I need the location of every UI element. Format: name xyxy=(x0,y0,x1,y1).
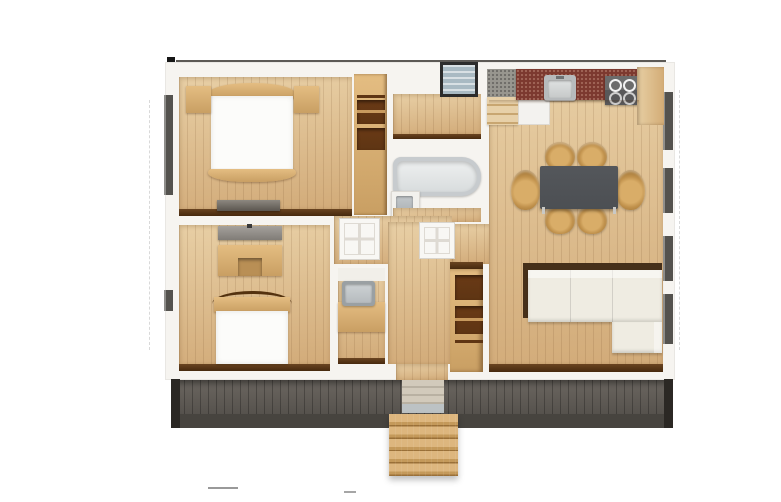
hall-top-floor xyxy=(393,94,481,134)
window-right-2 xyxy=(663,168,673,213)
hall-closet-board xyxy=(455,318,483,321)
bed2-mattress xyxy=(216,311,288,364)
hall-closet-shelf-1 xyxy=(455,275,483,300)
dining-table-leg-1 xyxy=(542,207,545,214)
bedroom2-dresser-knob xyxy=(247,224,252,228)
bedroom2-south-trim xyxy=(179,364,330,371)
bathtub-interior xyxy=(397,161,477,192)
window-right-1 xyxy=(663,92,673,150)
window-right-3 xyxy=(663,236,673,281)
open-door-bedroom2 xyxy=(339,218,380,260)
hall-top-trim xyxy=(393,134,481,139)
open-door-bathroom xyxy=(419,222,455,259)
wardrobe-open-shelf-2 xyxy=(357,128,385,150)
bedroom2-desk-kneehole xyxy=(238,258,262,276)
wardrobe-shelf-board-1 xyxy=(357,110,385,113)
dining-chair-right xyxy=(616,170,645,210)
top-wall-window xyxy=(440,62,478,97)
nightstand-right xyxy=(294,86,319,113)
sofa-body xyxy=(528,270,662,322)
bed2-headboard xyxy=(214,297,290,312)
utility-counter xyxy=(338,302,385,332)
deck-doorway-floor xyxy=(396,364,448,380)
dimension-dash-right xyxy=(679,90,680,350)
kitchen-gray-counter xyxy=(487,69,517,97)
utility-sink-basin xyxy=(345,284,372,303)
hall-closet-divider xyxy=(455,340,483,343)
kitchen-faucet xyxy=(556,76,564,79)
bedroom1-dresser xyxy=(217,200,280,211)
cooktop-burner-2 xyxy=(623,79,636,92)
kitchen-wood-end-counter xyxy=(637,67,664,125)
kitchen-sink-basin xyxy=(548,80,572,98)
dining-chair-bottom-2 xyxy=(577,205,607,234)
cooktop-burner-1 xyxy=(609,79,622,92)
window-right-4 xyxy=(663,294,673,344)
dining-chair-bottom-1 xyxy=(545,205,575,234)
utility-ledge xyxy=(338,268,385,281)
deck-post-right xyxy=(664,379,673,428)
dining-chair-left xyxy=(511,170,540,210)
exterior-steps xyxy=(389,414,458,476)
bed1-mattress xyxy=(211,96,293,173)
entry-ramp-landing xyxy=(402,404,444,413)
dimension-dash-left xyxy=(149,100,150,350)
great-room-south-trim xyxy=(489,364,663,372)
kitchen-counter-shadow xyxy=(489,100,639,104)
floor-plan-canvas xyxy=(0,0,781,502)
utility-south-trim xyxy=(338,358,385,364)
window-left-bedroom1 xyxy=(164,95,173,195)
nightstand-left xyxy=(186,86,211,113)
wardrobe-divider xyxy=(357,95,385,98)
bedroom2-gray-dresser xyxy=(218,226,282,240)
dining-table-leg-2 xyxy=(613,207,616,214)
dimension-dash-bottom-2 xyxy=(344,491,356,493)
deck-post-left xyxy=(171,379,180,428)
entry-ramp xyxy=(402,380,444,404)
dining-table xyxy=(540,166,618,209)
living-opening-floor xyxy=(452,224,490,264)
hall-closet-top xyxy=(450,262,483,269)
dimension-dash-bottom-1 xyxy=(208,487,238,489)
window-left-bedroom2 xyxy=(164,290,173,311)
sofa-chaise xyxy=(612,322,662,353)
